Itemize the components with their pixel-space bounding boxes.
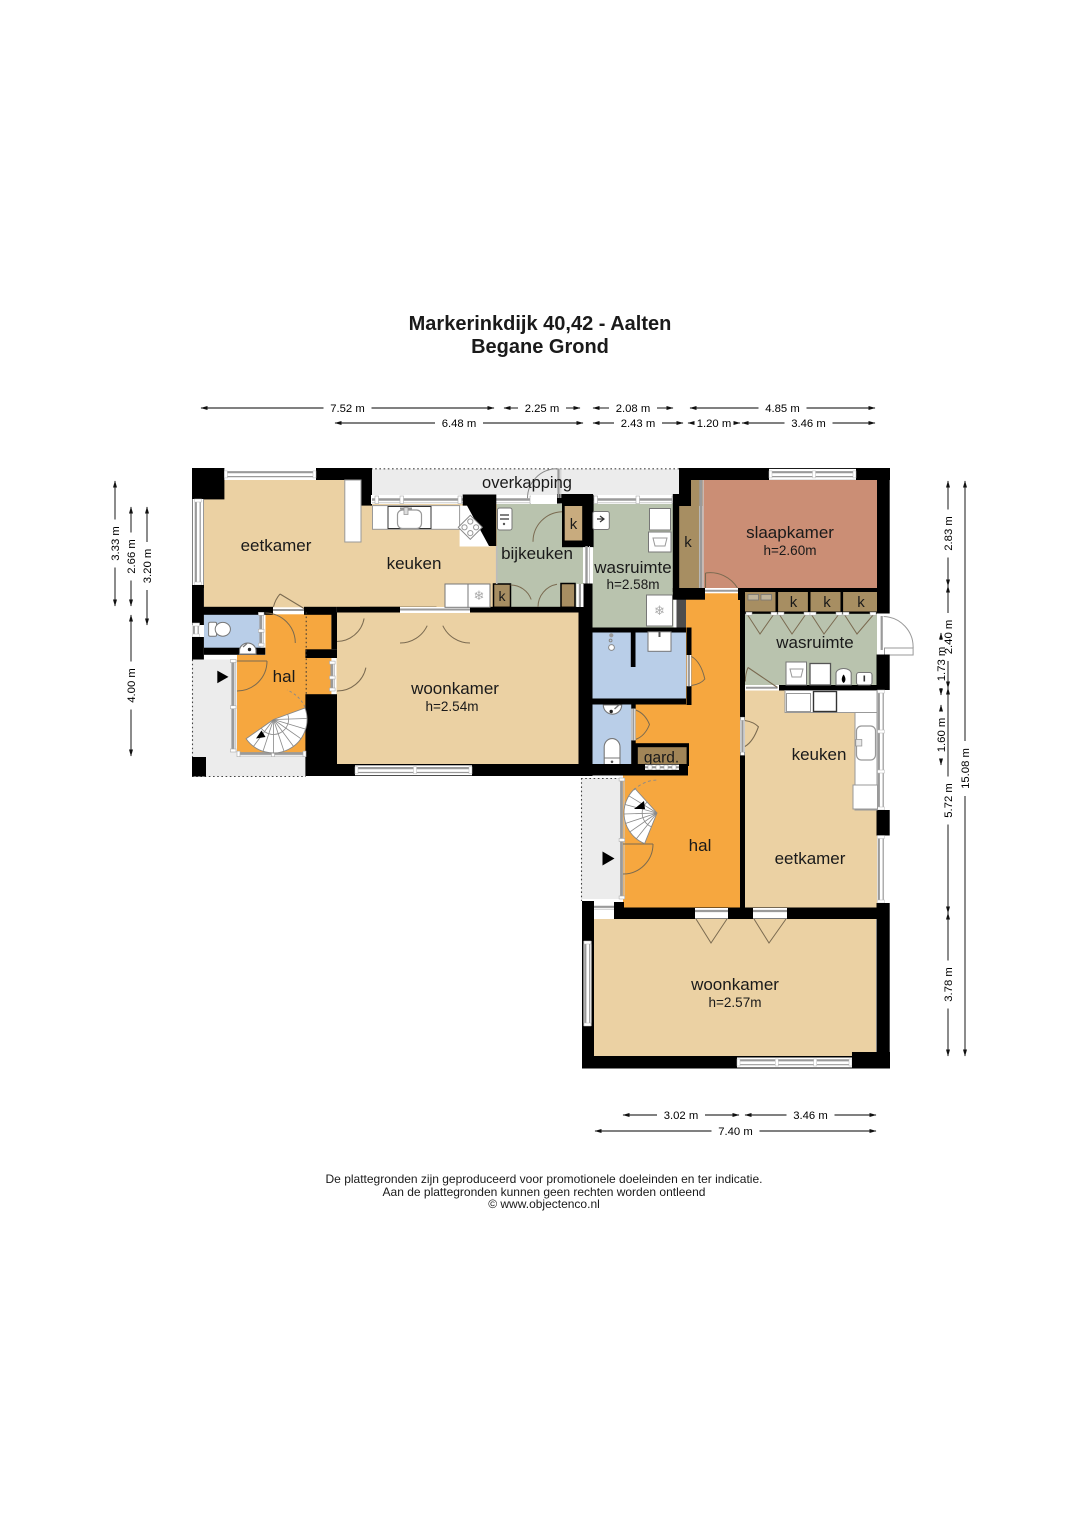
svg-text:woonkamer: woonkamer (690, 975, 779, 994)
svg-text:Begane Grond: Begane Grond (471, 336, 609, 358)
svg-text:k: k (570, 516, 578, 533)
svg-text:wasruimte: wasruimte (593, 558, 671, 577)
svg-text:3.33 m: 3.33 m (110, 526, 122, 561)
svg-text:1.60 m: 1.60 m (936, 718, 948, 753)
svg-text:wasruimte: wasruimte (775, 633, 853, 652)
svg-text:gard.: gard. (644, 750, 679, 767)
svg-text:7.40 m: 7.40 m (718, 1126, 753, 1138)
svg-text:2.83 m: 2.83 m (943, 516, 955, 551)
svg-text:woonkamer: woonkamer (410, 679, 499, 698)
svg-text:h=2.57m: h=2.57m (709, 995, 762, 1010)
svg-text:k: k (823, 594, 831, 611)
svg-text:4.85 m: 4.85 m (765, 403, 800, 415)
svg-text:slaapkamer: slaapkamer (746, 523, 834, 542)
svg-text:De plattegronden zijn geproduc: De plattegronden zijn geproduceerd voor … (326, 1172, 763, 1186)
svg-text:bijkeuken: bijkeuken (501, 544, 573, 563)
svg-text:6.48 m: 6.48 m (442, 418, 477, 430)
svg-text:h=2.54m: h=2.54m (426, 699, 479, 714)
svg-text:2.08 m: 2.08 m (616, 403, 651, 415)
svg-text:3.46 m: 3.46 m (793, 1110, 828, 1122)
svg-text:7.52 m: 7.52 m (330, 403, 365, 415)
svg-text:1.73 m: 1.73 m (936, 647, 948, 682)
svg-text:2.25 m: 2.25 m (525, 403, 560, 415)
svg-text:❄: ❄ (474, 588, 485, 603)
svg-text:k: k (857, 594, 865, 611)
svg-text:k: k (684, 534, 692, 551)
svg-text:eetkamer: eetkamer (775, 849, 846, 868)
svg-text:❄: ❄ (654, 603, 665, 618)
svg-text:4.00 m: 4.00 m (126, 668, 138, 703)
svg-text:eetkamer: eetkamer (241, 536, 312, 555)
svg-text:keuken: keuken (387, 554, 442, 573)
svg-text:hal: hal (273, 667, 296, 686)
svg-text:3.02 m: 3.02 m (664, 1110, 699, 1122)
svg-text:overkapping: overkapping (482, 474, 572, 492)
svg-text:h=2.60m: h=2.60m (764, 543, 817, 558)
svg-text:k: k (790, 594, 798, 611)
svg-text:h=2.58m: h=2.58m (607, 577, 660, 592)
svg-text:k: k (499, 588, 507, 604)
svg-text:© www.objectenco.nl: © www.objectenco.nl (488, 1197, 600, 1211)
svg-text:3.46 m: 3.46 m (791, 418, 826, 430)
svg-text:3.78 m: 3.78 m (943, 967, 955, 1002)
svg-text:hal: hal (689, 836, 712, 855)
svg-text:Markerinkdijk 40,42 - Aalten: Markerinkdijk 40,42 - Aalten (409, 313, 672, 335)
svg-text:15.08 m: 15.08 m (960, 748, 972, 789)
svg-text:keuken: keuken (792, 745, 847, 764)
svg-text:3.20 m: 3.20 m (142, 549, 154, 584)
svg-text:2.43 m: 2.43 m (621, 418, 656, 430)
svg-text:1.20 m: 1.20 m (697, 418, 732, 430)
svg-text:2.66 m: 2.66 m (126, 539, 138, 574)
svg-text:5.72 m: 5.72 m (943, 783, 955, 818)
